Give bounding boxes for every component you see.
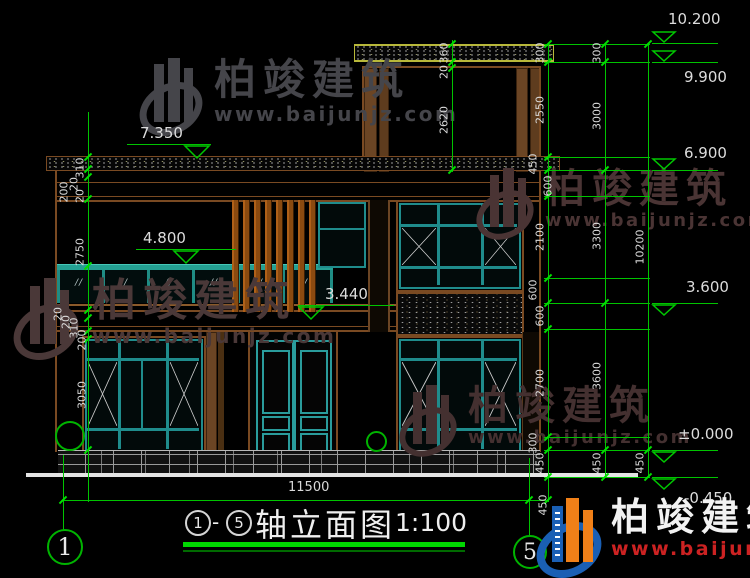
railing-post bbox=[192, 270, 195, 303]
window-rail bbox=[85, 358, 199, 361]
elevation-line bbox=[652, 170, 718, 171]
elevation-triangle bbox=[652, 304, 676, 316]
dim-label: 2620 bbox=[439, 106, 450, 134]
casement-pane bbox=[402, 362, 436, 426]
detail-circle bbox=[55, 421, 85, 451]
dim-label: 300 bbox=[592, 43, 603, 64]
dim-extension-line bbox=[544, 196, 650, 197]
dim-label: 450 bbox=[592, 453, 603, 474]
elevation-value: -0.450 bbox=[684, 491, 732, 506]
title-axis-start-circle: 1 bbox=[185, 510, 211, 536]
window-rail bbox=[399, 266, 517, 269]
dim-label: 10200 bbox=[635, 230, 646, 265]
brand-logo-footer: 柏竣建筑 www.baijunjz.com bbox=[535, 498, 750, 576]
casement-pane bbox=[485, 228, 516, 265]
drawing-title: 1 - 5 轴立面图 1:100 bbox=[183, 500, 469, 556]
elevation-value: ±0.000 bbox=[678, 427, 734, 442]
balcony-window-mullion bbox=[318, 228, 366, 230]
glass-hatch: // bbox=[165, 278, 173, 288]
elevation-value: 3.600 bbox=[686, 280, 729, 295]
title-axis-start: 1 bbox=[193, 514, 203, 532]
title-dash: - bbox=[212, 510, 219, 534]
dim-label: 2750 bbox=[75, 238, 86, 266]
casement-pane bbox=[170, 362, 198, 426]
dim-extension-line bbox=[544, 477, 650, 478]
elevation-drawing-canvas: // // // // // // bbox=[0, 0, 750, 578]
door-panel bbox=[300, 416, 328, 431]
dim-label: 450 bbox=[538, 495, 549, 516]
dim-label: 20 bbox=[75, 189, 86, 203]
elevation-value: 7.350 bbox=[140, 126, 183, 141]
casement-pane bbox=[485, 362, 516, 426]
dim-extension-line bbox=[544, 437, 650, 438]
watermark-top: 柏竣建筑 www.baijunjz.com bbox=[138, 58, 458, 142]
elevation-triangle bbox=[652, 31, 676, 43]
elevation-triangle bbox=[652, 158, 676, 170]
dim-label: 200 bbox=[77, 330, 88, 351]
middle-column bbox=[368, 200, 390, 332]
dim-label: 600 bbox=[543, 176, 554, 197]
dim-label: 3600 bbox=[592, 362, 603, 390]
elevation-line bbox=[652, 43, 718, 44]
dim-label: 450 bbox=[635, 453, 646, 474]
elevation-triangle bbox=[298, 306, 324, 320]
window-mullion bbox=[437, 339, 440, 449]
elevation-triangle bbox=[652, 50, 676, 62]
dim-label: 600 bbox=[535, 306, 546, 327]
title-underline-thin bbox=[183, 550, 465, 552]
elevation-triangle bbox=[652, 451, 676, 463]
dim-label: 310 bbox=[75, 158, 86, 179]
casement-pane bbox=[402, 228, 436, 265]
window-mullion bbox=[166, 339, 169, 449]
dim-label: 3300 bbox=[592, 222, 603, 250]
dim-extension-line bbox=[544, 329, 650, 330]
elevation-value: 3.440 bbox=[325, 287, 368, 302]
door-panel bbox=[300, 350, 328, 414]
dim-label: 3000 bbox=[592, 102, 603, 130]
dim-label: 3050 bbox=[77, 381, 88, 409]
window-mullion bbox=[481, 203, 484, 285]
wood-louver-screen bbox=[232, 200, 319, 312]
casement-pane bbox=[88, 362, 117, 426]
elevation-value: 10.200 bbox=[668, 12, 721, 27]
dim-label: 300 bbox=[535, 43, 546, 64]
dim-label: 2550 bbox=[535, 96, 546, 124]
lower-roof-slab bbox=[46, 156, 560, 171]
floor-beam-line bbox=[57, 330, 397, 332]
railing-post bbox=[102, 270, 105, 303]
dim-label: 2100 bbox=[535, 223, 546, 251]
wall-pier-column bbox=[218, 332, 224, 454]
dim-label: 2700 bbox=[535, 369, 546, 397]
window-rail bbox=[85, 428, 199, 431]
balcony-window bbox=[318, 202, 366, 268]
dim-tick bbox=[644, 473, 652, 481]
glass-hatch: // bbox=[210, 278, 218, 288]
dim-chain-line bbox=[605, 44, 606, 477]
dim-extension-line bbox=[544, 157, 650, 158]
stone-base bbox=[58, 450, 540, 474]
title-axis-end-circle: 5 bbox=[226, 510, 252, 536]
door-panel bbox=[262, 350, 290, 414]
door-panel bbox=[262, 416, 290, 431]
fascia-line bbox=[55, 182, 540, 183]
dim-label-total-width: 11500 bbox=[288, 482, 329, 493]
dim-extension-line bbox=[544, 303, 650, 304]
dim-chain-line bbox=[648, 44, 649, 477]
dim-label: 450 bbox=[535, 453, 546, 474]
title-axis-end: 5 bbox=[234, 514, 244, 532]
dim-extension-line bbox=[544, 450, 650, 451]
title-scale: 1:100 bbox=[395, 508, 467, 537]
footer-url: www.baijunjz.com bbox=[611, 538, 750, 560]
elevation-triangle bbox=[184, 145, 210, 159]
window-rail bbox=[399, 224, 517, 227]
window-rail bbox=[399, 428, 517, 431]
window-rail bbox=[399, 358, 517, 361]
axis-bubble-5: 5 bbox=[513, 535, 547, 569]
dim-label: 20 bbox=[439, 65, 450, 79]
window-mullion bbox=[437, 203, 440, 285]
elevation-value: 4.800 bbox=[143, 231, 186, 246]
watermark-brand: 柏竣建筑 bbox=[214, 58, 458, 102]
elevation-triangle bbox=[173, 250, 199, 264]
window-mullion bbox=[481, 339, 484, 449]
window-mullion bbox=[141, 361, 143, 428]
watermark-url: www.baijunjz.com bbox=[214, 102, 458, 126]
elevation-line bbox=[652, 62, 718, 63]
dim-extension-line bbox=[544, 278, 650, 279]
title-name: 轴立面图 bbox=[255, 500, 395, 546]
elevation-value: 9.900 bbox=[684, 70, 727, 85]
elevation-value: 6.900 bbox=[684, 146, 727, 161]
dim-label: 600 bbox=[528, 280, 539, 301]
spandrel-panel bbox=[396, 292, 524, 336]
glass-hatch: // bbox=[75, 278, 83, 288]
railing-post bbox=[57, 270, 60, 303]
dim-extension-line bbox=[544, 170, 650, 171]
dim-label: 300 bbox=[528, 433, 539, 454]
title-underline bbox=[183, 542, 465, 547]
railing-post bbox=[147, 270, 150, 303]
dim-label: 360 bbox=[439, 43, 450, 64]
fascia-line bbox=[55, 196, 540, 197]
elevation-triangle bbox=[652, 478, 676, 490]
dim-label: 450 bbox=[528, 154, 539, 175]
glass-hatch: // bbox=[120, 278, 128, 288]
axis-number: 5 bbox=[523, 540, 537, 565]
detail-circle bbox=[366, 431, 387, 452]
axis-number: 1 bbox=[57, 533, 72, 561]
axis-bubble-1: 1 bbox=[47, 529, 83, 565]
axis-line bbox=[63, 455, 64, 531]
wall-pier-column bbox=[206, 332, 217, 456]
floor-beam-line bbox=[57, 326, 397, 327]
tower-left-wall bbox=[362, 66, 364, 170]
balcony-floor-line bbox=[57, 310, 397, 312]
window-mullion bbox=[118, 339, 121, 449]
